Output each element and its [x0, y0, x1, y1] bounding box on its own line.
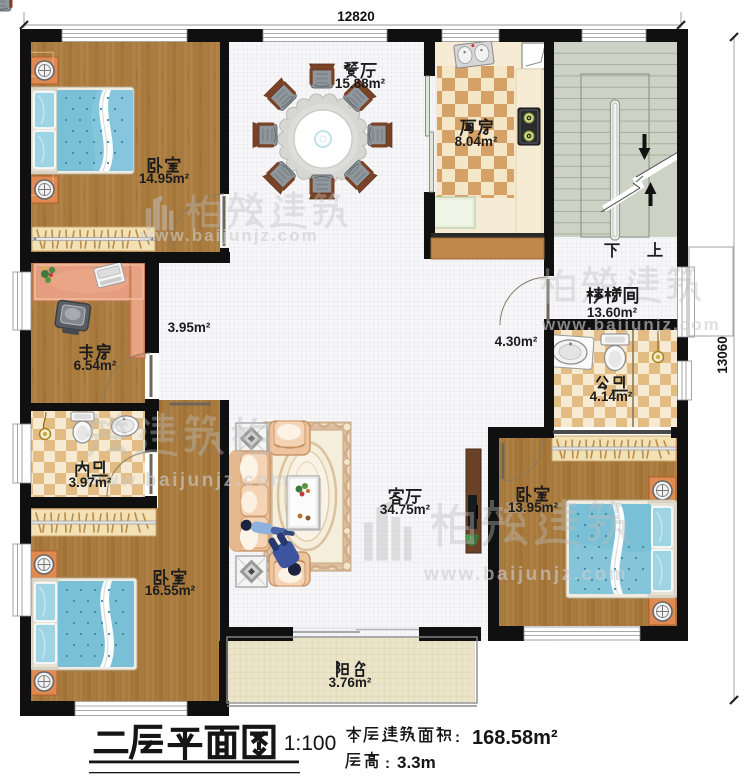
- svg-text:168.58m²: 168.58m²: [472, 727, 558, 749]
- svg-text:4.30m²: 4.30m²: [495, 334, 538, 349]
- svg-text:www.baijunjz.com: www.baijunjz.com: [85, 470, 290, 491]
- svg-text::: :: [385, 755, 390, 772]
- svg-text::: :: [455, 729, 460, 746]
- svg-text:13.95m²: 13.95m²: [508, 500, 559, 515]
- svg-text:16.55m²: 16.55m²: [145, 583, 196, 598]
- svg-text:3.3m: 3.3m: [397, 753, 436, 772]
- svg-text:www.baijunjz.com: www.baijunjz.com: [139, 226, 319, 245]
- svg-text:14.95m²: 14.95m²: [139, 171, 190, 186]
- svg-text:3.97m²: 3.97m²: [69, 475, 112, 490]
- svg-text:13060: 13060: [715, 336, 730, 374]
- svg-text:1:100: 1:100: [284, 732, 337, 755]
- svg-text:3.95m²: 3.95m²: [168, 320, 211, 335]
- svg-text:12820: 12820: [337, 9, 375, 24]
- svg-text:4.14m²: 4.14m²: [590, 389, 633, 404]
- svg-text:13.60m²: 13.60m²: [587, 305, 638, 320]
- svg-text:15.88m²: 15.88m²: [335, 76, 386, 91]
- svg-text:www.baijunjz.com: www.baijunjz.com: [423, 564, 628, 585]
- svg-text:6.54m²: 6.54m²: [74, 358, 117, 373]
- svg-text:34.75m²: 34.75m²: [380, 502, 431, 517]
- svg-text:8.04m²: 8.04m²: [455, 134, 498, 149]
- svg-text:3.76m²: 3.76m²: [329, 675, 372, 690]
